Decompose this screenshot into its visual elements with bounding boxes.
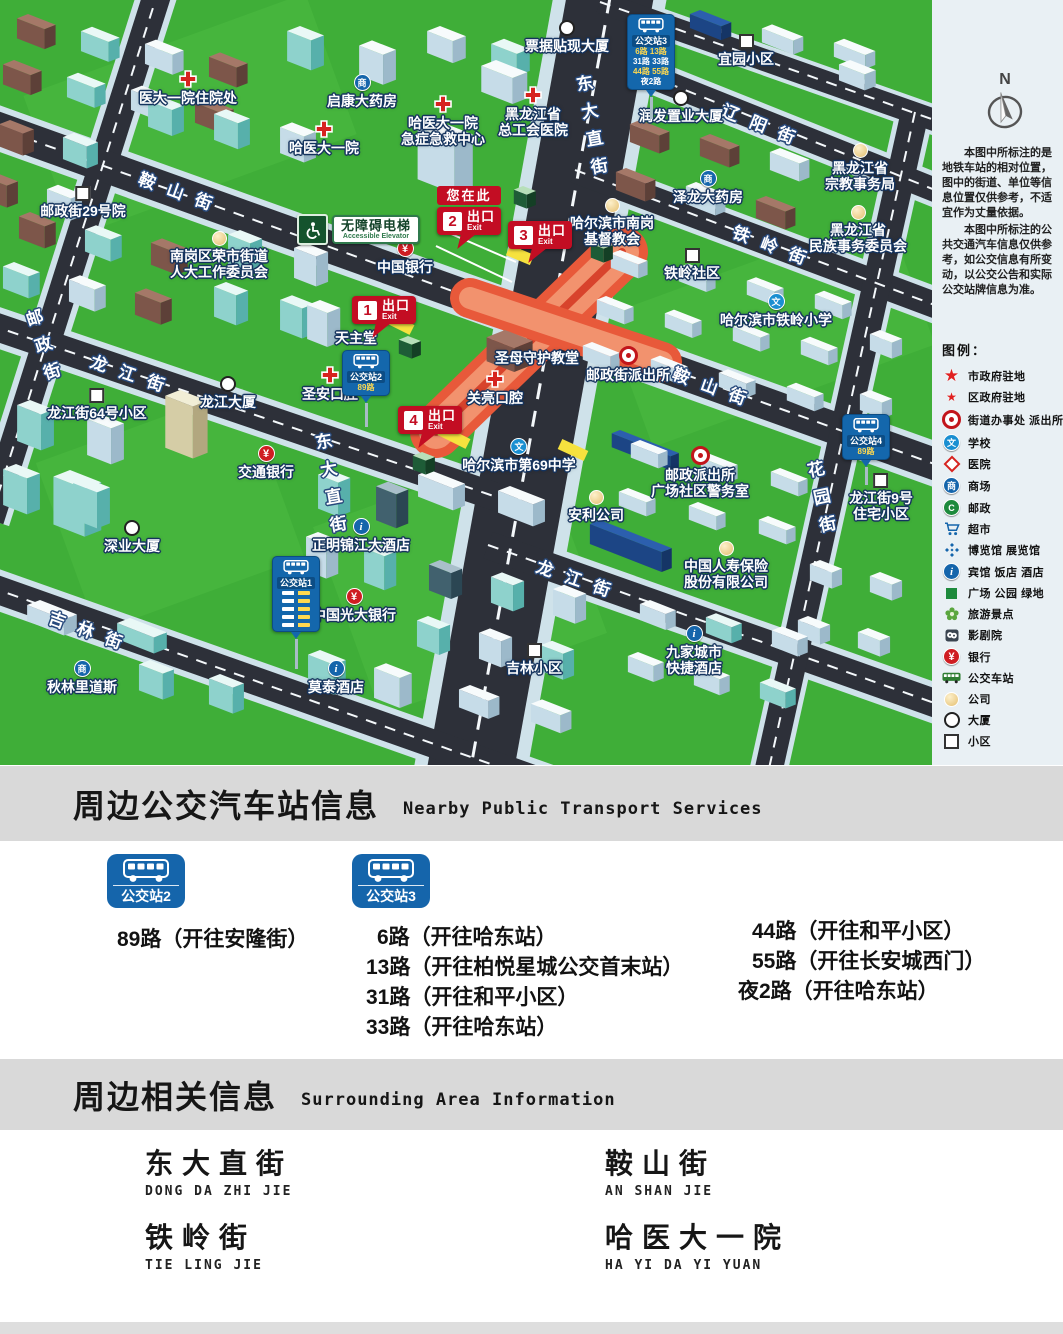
legend-item-label: 邮政 — [968, 500, 991, 516]
legend-item-label: 宾馆 饭店 酒店 — [968, 564, 1044, 580]
estate-icon — [739, 34, 754, 49]
exit-label-zh: 出口 — [467, 210, 495, 223]
place-label-text: 哈医大一院 — [289, 140, 359, 156]
legend-item: ★区政府驻地 — [942, 389, 1054, 405]
place-label: i九家城市快捷酒店 — [666, 625, 722, 676]
place-label: ¥中国光大银行 — [312, 588, 396, 623]
accessible-elevator-sign: 无障碍电梯 Accessible Elevator — [297, 214, 420, 245]
exit-label-zh: 出口 — [382, 299, 410, 312]
bus-sign-route: 89路 — [358, 383, 375, 393]
bus-icon — [282, 560, 310, 575]
school-icon: 文 — [768, 293, 785, 310]
place-label-text: 正明锦江大酒店 — [312, 537, 410, 553]
hotel-icon: i — [686, 625, 703, 642]
place-label-text: 民族事务委员会 — [809, 238, 907, 254]
place-label-text: 股份有限公司 — [684, 574, 768, 590]
place-label: 安利公司 — [568, 490, 624, 523]
surrounding-entry: 哈医大一院 HA YI DA YI YUAN — [605, 1222, 790, 1273]
place-label: 关亮口腔 — [467, 370, 523, 406]
place-label: 哈医大一院 — [289, 120, 359, 156]
entry-zh: 哈医大一院 — [605, 1222, 790, 1254]
map-canvas: 无障碍电梯 Accessible Elevator 鞍山街鞍山街铁岭街辽阳街龙江… — [0, 0, 1063, 765]
hotel-icon: i — [943, 563, 960, 580]
subway-exit-sign-3: 3出口Exit — [508, 221, 572, 263]
tower-icon — [944, 712, 960, 728]
bus-sign-route — [282, 599, 310, 603]
place-label-text: 医大一院住院处 — [139, 90, 237, 106]
place-label: ¥中国银行 — [377, 240, 433, 275]
legend-item: 旅游景点 — [942, 606, 1054, 622]
tower-icon — [220, 376, 236, 392]
place-label: 票据贴现大厦 — [525, 20, 609, 54]
elevator-label: 无障碍电梯 Accessible Elevator — [332, 215, 420, 244]
legend-item: ★市政府驻地 — [942, 367, 1054, 384]
place-label-text: 哈尔滨市南岗 — [570, 215, 654, 231]
legend-item: 广场 公园 绿地 — [942, 585, 1054, 601]
hotel-icon: i — [328, 660, 345, 677]
exit-label-en: Exit — [428, 422, 456, 431]
entry-zh: 东大直街 — [145, 1148, 293, 1180]
bus-sign-route: 夜2路 — [641, 77, 661, 87]
bus-routes-station3-extra: 44路（开往和平小区）55路（开往长安城西门）夜2路（开往哈东站） — [738, 919, 985, 1009]
legend-item-label: 影剧院 — [968, 627, 1003, 643]
legend-item: ¥银行 — [942, 648, 1054, 665]
legend-item: 影剧院 — [942, 627, 1054, 643]
place-label-text: 泽龙大药房 — [673, 189, 743, 205]
school-icon: 文 — [943, 434, 960, 451]
legend-item-label: 超市 — [968, 521, 991, 537]
place-label: 邮政街派出所 — [586, 346, 670, 383]
tower-icon — [124, 520, 140, 536]
place-label-text: 中国人寿保险 — [684, 558, 768, 574]
place-label: 商泽龙大药房 — [673, 170, 743, 205]
place-label-text: 人大工作委员会 — [170, 264, 268, 280]
exit-label-en: Exit — [467, 223, 495, 232]
legend-item-label: 银行 — [968, 649, 991, 665]
place-label-text: 哈尔滨市第69中学 — [462, 457, 576, 473]
you-are-here-label: 您在此 — [437, 186, 501, 205]
place-label: 铁岭社区 — [664, 248, 720, 281]
surrounding-entry: 铁岭街 TIE LING JIE — [145, 1222, 263, 1273]
bus-icon — [637, 18, 665, 33]
place-label: 医大一院住院处 — [139, 70, 237, 106]
bus-sign-name: 公交站4 — [847, 435, 885, 447]
legend-item: i宾馆 饭店 酒店 — [942, 563, 1054, 580]
company-icon — [851, 205, 866, 220]
legend-item-label: 旅游景点 — [968, 606, 1014, 622]
place-label: 黑龙江省民族事务委员会 — [809, 205, 907, 254]
bank-icon: ¥ — [346, 588, 363, 605]
hospital-cross-icon — [524, 86, 542, 104]
entry-zh: 铁岭街 — [145, 1222, 263, 1254]
legend-item-label: 公司 — [968, 691, 991, 707]
place-label-text: 圣母守护教堂 — [495, 350, 579, 366]
bus-sign-route: 6路 13路 — [635, 47, 667, 57]
company-icon — [719, 541, 734, 556]
place-label-text: 哈医大一院 — [408, 115, 478, 131]
legend-item-label: 大厦 — [968, 712, 991, 728]
hotel-icon: i — [353, 518, 370, 535]
place-label: 黑龙江省宗教事务局 — [825, 143, 895, 192]
section-title-zh: 周边公交汽车站信息 — [73, 781, 379, 827]
legend-item: 商商场 — [942, 477, 1054, 494]
place-label-text: 深业大厦 — [104, 538, 160, 554]
legend-item-label: 街道办事处 派出所 — [968, 412, 1063, 428]
supermarket-cart-icon — [944, 522, 960, 536]
bus-icon — [368, 859, 414, 883]
legend-item: 小区 — [942, 733, 1054, 749]
surrounding-entry: 鞍山街 AN SHAN JIE — [605, 1148, 716, 1199]
legend-title: 图例： — [942, 340, 1054, 359]
bus-route-line: 55路（开往长安城西门） — [738, 949, 985, 974]
bus-route-line: 31路（开往和平小区） — [366, 985, 683, 1010]
compass-icon — [982, 88, 1028, 132]
bus-stop-badge-3: 公交站3 — [352, 854, 430, 908]
park-icon — [946, 588, 957, 599]
place-label-text: 九家城市 — [666, 644, 722, 660]
hospital-icon — [943, 456, 960, 473]
estate-icon — [89, 388, 104, 403]
place-label-text: 交通银行 — [238, 464, 294, 480]
place-label: 圣母守护教堂 — [495, 350, 579, 366]
surrounding-entry: 东大直街 DONG DA ZHI JIE — [145, 1148, 293, 1199]
exit-number: 3 — [514, 226, 533, 245]
place-label-text: 龙江大厦 — [200, 394, 256, 410]
exit-number: 4 — [404, 411, 423, 430]
bus-route-line: 44路（开往和平小区） — [738, 919, 985, 944]
mall-icon: 商 — [700, 170, 717, 187]
legend-item-label: 小区 — [968, 733, 991, 749]
exit-number: 2 — [443, 212, 462, 231]
bus-route-line: 夜2路（开往哈东站） — [738, 979, 985, 1004]
legend-list: ★市政府驻地★区政府驻地街道办事处 派出所文学校医院商商场C邮政超市博览馆 展览… — [942, 367, 1054, 749]
place-label: 哈医大一院急症急救中心 — [401, 95, 485, 147]
compass: N — [956, 72, 1054, 132]
legend-item-label: 博览馆 展览馆 — [968, 542, 1041, 558]
place-label-text: 哈尔滨市铁岭小学 — [720, 312, 832, 328]
place-label-text: 黑龙江省 — [832, 160, 888, 176]
exit-number: 1 — [358, 301, 377, 320]
bus-info-section: 公交站2 公交站3 89路（开往安隆街） 6路（开往哈东站）13路（开往柏悦星城… — [0, 841, 1063, 1059]
place-label-text: 黑龙江省 — [830, 222, 886, 238]
bank-icon: ¥ — [943, 648, 960, 665]
hospital-cross-icon — [315, 120, 333, 138]
map-bus-stop-sign: 公交站289路 — [342, 350, 390, 427]
district-gov-star-icon: ★ — [946, 391, 957, 403]
station-area-map-poster: 无障碍电梯 Accessible Elevator 鞍山街鞍山街铁岭街辽阳街龙江… — [0, 0, 1063, 1334]
company-icon — [589, 490, 604, 505]
company-icon — [853, 143, 868, 158]
entry-pinyin: AN SHAN JIE — [605, 1184, 716, 1199]
transport-section-header: 周边公交汽车站信息 Nearby Public Transport Servic… — [0, 766, 1063, 841]
company-icon — [212, 231, 227, 246]
mall-icon: 商 — [354, 74, 371, 91]
estate-icon — [944, 734, 959, 749]
place-label: 邮政派出所广场社区警务室 — [651, 446, 749, 499]
government-office-icon — [691, 446, 710, 465]
compass-north-label: N — [999, 72, 1011, 88]
place-label-text: 快捷酒店 — [666, 660, 722, 676]
theater-icon — [945, 629, 959, 642]
legend-item: 公司 — [942, 691, 1054, 707]
street-name: 鞍山街 — [135, 165, 228, 219]
bank-icon: ¥ — [258, 445, 275, 462]
surrounding-entries: 东大直街 DONG DA ZHI JIE 鞍山街 AN SHAN JIE 铁岭街… — [0, 1130, 1063, 1322]
place-label: 黑龙江省总工会医院 — [498, 86, 568, 138]
hospital-cross-icon — [321, 366, 339, 384]
street-name: 龙江街 — [533, 553, 626, 606]
place-label-text: 邮政派出所 — [665, 467, 735, 483]
tower-icon — [673, 90, 689, 106]
place-label-text: 启康大药房 — [327, 93, 397, 109]
section-title-en: Surrounding Area Information — [301, 1090, 616, 1110]
place-label-text: 宗教事务局 — [825, 176, 895, 192]
place-label: i正明锦江大酒店 — [312, 518, 410, 553]
place-label-text: 关亮口腔 — [467, 390, 523, 406]
place-label-text: 秋林里道斯 — [47, 679, 117, 695]
place-label-text: 中国光大银行 — [312, 607, 396, 623]
surrounding-section-header: 周边相关信息 Surrounding Area Information — [0, 1059, 1063, 1130]
entry-pinyin: TIE LING JIE — [145, 1258, 263, 1273]
hospital-cross-icon — [434, 95, 452, 113]
post-icon: C — [943, 499, 960, 516]
street-name: 辽阳街 — [719, 97, 812, 154]
bus-route-line: 33路（开往哈东站） — [366, 1015, 683, 1040]
street-name: 花园街 — [800, 458, 842, 545]
place-label: 吉林小区 — [506, 643, 562, 676]
map-disclaimer-1: 本图中所标注的是地铁车站的相对位置，图中的街道、单位等信息位置仅供参考，不适宜作… — [942, 146, 1054, 221]
exit-label-en: Exit — [538, 237, 566, 246]
bus-routes-station3: 6路（开往哈东站）13路（开往柏悦星城公交首末站）31路（开往和平小区）33路（… — [366, 925, 683, 1045]
bus-route-line: 89路（开往安隆街） — [117, 927, 308, 952]
expo-icon — [945, 543, 959, 557]
estate-icon — [527, 643, 542, 658]
place-label: 商启康大药房 — [327, 74, 397, 109]
bus-sign-route: 44路 55路 — [633, 67, 669, 77]
section-title-en: Nearby Public Transport Services — [403, 799, 763, 819]
entry-pinyin: HA YI DA YI YUAN — [605, 1258, 790, 1273]
government-office-icon — [942, 410, 961, 429]
place-label: 中国人寿保险股份有限公司 — [684, 541, 768, 590]
bus-icon — [352, 354, 380, 369]
place-label-text: 住宅小区 — [853, 506, 909, 522]
exit-label-zh: 出口 — [538, 224, 566, 237]
place-label-text: 龙江街9号 — [849, 490, 913, 506]
tower-icon — [559, 20, 575, 36]
place-label: 宜园小区 — [718, 34, 774, 67]
place-label-text: 广场社区警务室 — [651, 483, 749, 499]
place-label-text: 急症急救中心 — [401, 131, 485, 147]
bus-icon — [852, 418, 880, 433]
elevator-label-zh: 无障碍电梯 — [341, 218, 411, 233]
bus-stop-badge-label: 公交站2 — [113, 885, 179, 904]
entry-pinyin: DONG DA ZHI JIE — [145, 1184, 293, 1199]
place-label-text: 邮政街29号院 — [40, 203, 126, 219]
map-bus-stop-sign: 公交站1 — [272, 556, 320, 669]
place-label-text: 南岗区荣市街道 — [170, 248, 268, 264]
legend-item-label: 市政府驻地 — [968, 368, 1026, 384]
mall-icon: 商 — [74, 660, 91, 677]
legend-item: 超市 — [942, 521, 1054, 537]
exit-label-en: Exit — [382, 312, 410, 321]
legend-item: 街道办事处 派出所 — [942, 410, 1054, 429]
place-label: 哈尔滨市南岗基督教会 — [570, 198, 654, 247]
place-label: 龙江大厦 — [200, 376, 256, 410]
hospital-cross-icon — [486, 370, 504, 388]
legend-item-label: 商场 — [968, 478, 991, 494]
place-label-text: 基督教会 — [584, 231, 640, 247]
estate-icon — [685, 248, 700, 263]
place-label: 商秋林里道斯 — [47, 660, 117, 695]
estate-icon — [75, 186, 90, 201]
legend-item: 博览馆 展览馆 — [942, 542, 1054, 558]
bus-sign-route — [282, 591, 310, 595]
subway-exit-sign-2: 您在此2出口Exit — [437, 186, 501, 249]
legend-item: C邮政 — [942, 499, 1054, 516]
place-label: 文哈尔滨市第69中学 — [462, 438, 576, 473]
place-label-text: 吉林小区 — [506, 660, 562, 676]
company-icon — [605, 198, 620, 213]
legend-item-label: 广场 公园 绿地 — [968, 585, 1044, 601]
bus-sign-name: 公交站3 — [632, 35, 670, 47]
place-label-text: 龙江街64号小区 — [47, 405, 147, 421]
subway-exit-sign-4: 4出口Exit — [398, 406, 462, 448]
bus-stop-icon — [942, 672, 961, 684]
company-icon — [944, 692, 959, 707]
street-name: 鞍山街 — [669, 360, 762, 414]
place-label: 文哈尔滨市铁岭小学 — [720, 293, 832, 328]
place-label: 邮政街29号院 — [40, 186, 126, 219]
legend-item-label: 学校 — [968, 435, 991, 451]
legend-item: 文学校 — [942, 434, 1054, 451]
bus-sign-route — [282, 615, 310, 619]
subway-exit-sign-1: 1出口Exit — [352, 296, 416, 338]
bus-sign-route — [282, 623, 310, 627]
place-label: 龙江街64号小区 — [47, 388, 147, 421]
map-bus-stop-sign: 公交站489路 — [842, 414, 890, 485]
bus-stop-badge-label: 公交站3 — [358, 885, 424, 904]
place-label: ¥交通银行 — [238, 445, 294, 480]
school-icon: 文 — [510, 438, 527, 455]
section-title-zh: 周边相关信息 — [73, 1072, 277, 1118]
exit-label-zh: 出口 — [428, 409, 456, 422]
place-label: 南岗区荣市街道人大工作委员会 — [170, 231, 268, 280]
elevator-label-en: Accessible Elevator — [341, 233, 411, 241]
legend-item-label: 医院 — [968, 456, 991, 472]
place-label-text: 票据贴现大厦 — [525, 38, 609, 54]
bus-sign-route: 31路 33路 — [633, 57, 669, 67]
scenic-spot-icon — [945, 607, 959, 621]
bus-sign-name: 公交站1 — [277, 577, 315, 589]
entry-zh: 鞍山街 — [605, 1148, 716, 1180]
place-label-text: 宜园小区 — [718, 51, 774, 67]
legend-item-label: 公交车站 — [968, 670, 1014, 686]
bus-sign-route: 89路 — [858, 447, 875, 457]
street-name: 吉林街 — [45, 604, 138, 658]
street-name: 东大直街 — [569, 73, 613, 188]
legend-item: 大厦 — [942, 712, 1054, 728]
place-label-text: 中国银行 — [377, 259, 433, 275]
legend-panel: N 本图中所标注的是地铁车站的相对位置，图中的街道、单位等信息位置仅供参考，不适… — [932, 0, 1063, 765]
legend-item: 公交车站 — [942, 670, 1054, 686]
map-disclaimer-2: 本图中所标注的公共交通汽车信息仅供参考，如公交信息有所变动，以公交公告和实际公交… — [942, 223, 1054, 298]
bus-routes-station2: 89路（开往安隆街） — [117, 927, 308, 957]
place-label-text: 黑龙江省 — [505, 106, 561, 122]
wheelchair-icon — [297, 214, 328, 245]
street-name: 邮政街 — [18, 306, 68, 394]
legend-item-label: 区政府驻地 — [968, 389, 1026, 405]
bus-route-line: 13路（开往柏悦星城公交首末站） — [366, 955, 683, 980]
hospital-cross-icon — [179, 70, 197, 88]
bus-sign-route — [282, 607, 310, 611]
bus-route-line: 6路（开往哈东站） — [366, 925, 683, 950]
mall-icon: 商 — [943, 477, 960, 494]
place-label-text: 铁岭社区 — [664, 265, 720, 281]
place-label-text: 安利公司 — [568, 507, 624, 523]
government-office-icon — [619, 346, 638, 365]
place-label-text: 总工会医院 — [498, 122, 568, 138]
bottom-strip — [0, 1322, 1063, 1334]
legend-item: 医院 — [942, 456, 1054, 472]
place-label-text: 莫泰酒店 — [308, 679, 364, 695]
bus-icon — [123, 859, 169, 883]
map-bus-stop-sign: 公交站36路 13路31路 33路44路 55路夜2路 — [627, 14, 675, 119]
map-overlays: 无障碍电梯 Accessible Elevator 鞍山街鞍山街铁岭街辽阳街龙江… — [0, 0, 1063, 765]
bus-sign-name: 公交站2 — [347, 371, 385, 383]
place-label: 深业大厦 — [104, 520, 160, 554]
city-gov-star-icon: ★ — [944, 367, 959, 384]
place-label-text: 邮政街派出所 — [586, 367, 670, 383]
bus-stop-badge-2: 公交站2 — [107, 854, 185, 908]
